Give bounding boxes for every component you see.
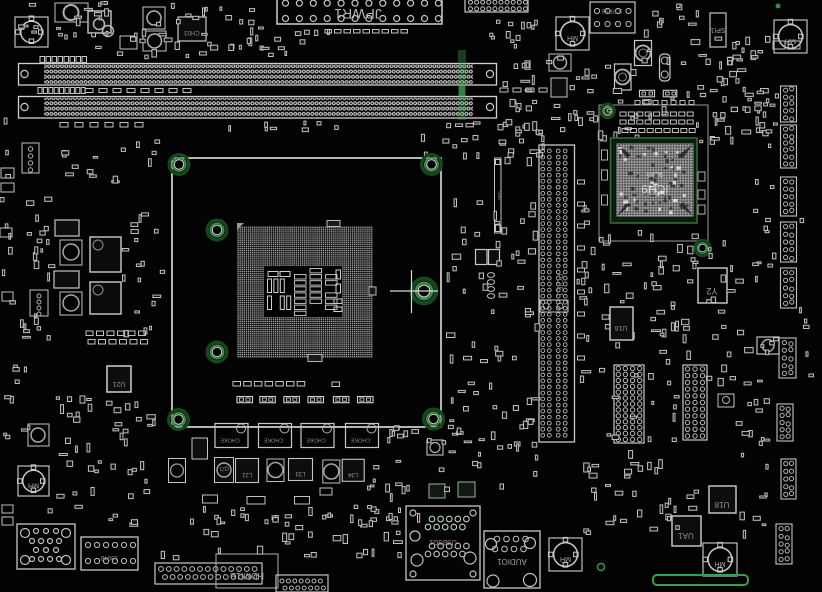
svg-text:U16: U16: [614, 324, 627, 331]
svg-text:Y2: Y2: [706, 286, 717, 296]
svg-text:UA1: UA1: [678, 531, 694, 540]
svg-text:L21: L21: [241, 471, 252, 477]
svg-text:AUDIO1: AUDIO1: [497, 557, 527, 566]
svg-text:CHOKE: CHOKE: [220, 437, 240, 443]
svg-text:CHOKE: CHOKE: [350, 437, 370, 443]
svg-text:S.PR56: S.PR56: [601, 7, 622, 13]
svg-text:CHOKE: CHOKE: [306, 437, 326, 443]
svg-text:L33: L33: [295, 470, 306, 476]
svg-text:ICH9: ICH9: [641, 182, 669, 196]
svg-text:USB3G1: USB3G1: [429, 538, 457, 545]
svg-text:L34: L34: [347, 471, 358, 477]
svg-text:MH: MH: [560, 555, 571, 562]
svg-text:U21: U21: [112, 380, 125, 387]
svg-text:MH: MH: [715, 560, 726, 567]
svg-text:HDMI1B: HDMI1B: [230, 571, 264, 581]
svg-text:MH: MH: [28, 482, 39, 489]
svg-text:SPI1: SPI1: [710, 26, 725, 33]
svg-text:U18: U18: [714, 500, 729, 509]
svg-text:PCIE1: PCIE1: [555, 273, 564, 297]
svg-text:CH03: CH03: [184, 29, 200, 35]
svg-text:JPWR1: JPWR1: [334, 6, 382, 22]
svg-text:SW1: SW1: [497, 191, 502, 201]
svg-text:Q21: Q21: [219, 465, 229, 471]
svg-text:1394B: 1394B: [100, 554, 117, 560]
svg-text:CHOKE: CHOKE: [263, 437, 283, 443]
svg-text:SLA9: SLA9: [646, 170, 663, 177]
svg-text:MH: MH: [567, 34, 578, 41]
